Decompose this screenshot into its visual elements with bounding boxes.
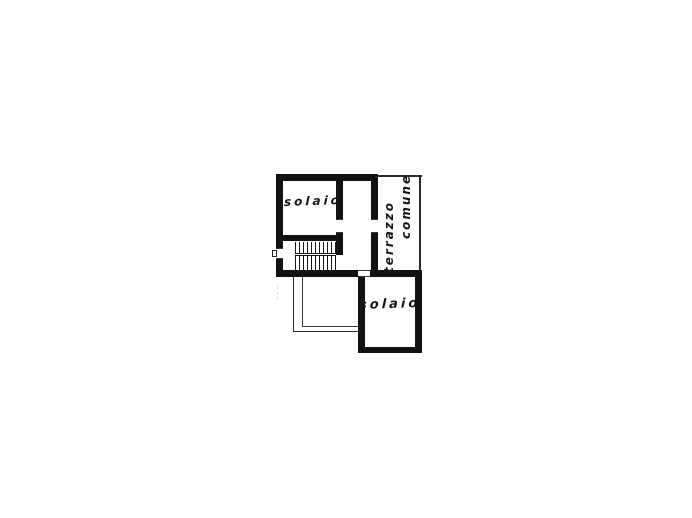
wall-bottom-left	[276, 270, 358, 277]
balcony-inner-outline	[302, 277, 359, 327]
wall-top	[276, 174, 378, 181]
terrace-right-edge	[419, 175, 421, 272]
scan-artifact-dash	[277, 286, 278, 300]
staircase-flight-lower	[295, 256, 336, 270]
staircase-flight-upper	[295, 242, 336, 253]
floor-plan: solaio terrazzo comune solaio	[270, 170, 426, 360]
bottom-wall-door-opening	[358, 270, 370, 277]
label-solaio-upper: solaio	[284, 193, 340, 209]
balcony-outer-bottom-edge	[293, 331, 359, 332]
wall-middle-terrace-upper	[371, 174, 378, 219]
solaio-middle-opening	[336, 219, 343, 233]
lower-room-wall-bottom	[358, 347, 422, 353]
balcony-outer-left-edge	[293, 277, 294, 332]
wall-solaio-stairs	[276, 235, 343, 241]
stair-window-tick	[272, 250, 277, 257]
label-terrace-word-comune: comune	[399, 183, 413, 239]
label-solaio-lower: solaio	[359, 297, 419, 313]
stair-window-opening	[276, 248, 283, 259]
lower-room-wall-right	[415, 270, 422, 353]
lower-room-wall-left	[358, 277, 365, 353]
label-terrace-word-terrazzo: terrazzo	[382, 209, 396, 273]
middle-terrace-opening	[371, 219, 378, 233]
